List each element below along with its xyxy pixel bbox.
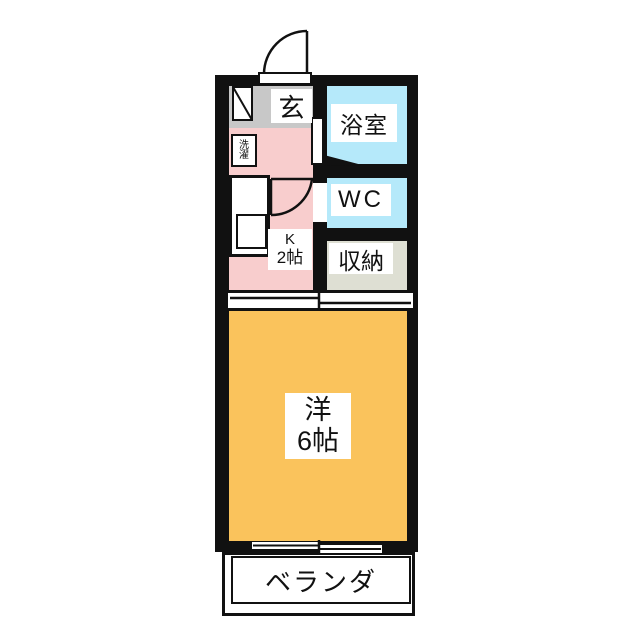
veranda: ベランダ	[231, 556, 411, 604]
kitchen-label-line1: K	[285, 231, 295, 248]
veranda-label: ベランダ	[265, 562, 377, 599]
bathroom-label: 浴室	[331, 104, 397, 142]
floor-plan: 洋 6帖 ベランダ 洗 濯	[0, 0, 640, 640]
room-western: 洋 6帖	[229, 311, 407, 541]
western-room-label-line1: 洋	[305, 395, 332, 426]
genkan-label: 玄	[271, 89, 312, 123]
western-room-label: 洋 6帖	[285, 393, 351, 459]
storage-label: 収納	[329, 243, 393, 274]
bathroom-door-icon	[311, 117, 324, 165]
kitchen-label: K 2帖	[268, 229, 312, 270]
sliding-door-track	[228, 293, 413, 308]
wc-label: WC	[331, 184, 391, 216]
kitchen-label-line2: 2帖	[277, 248, 303, 268]
western-room-label-line2: 6帖	[297, 426, 339, 457]
laundry-label-line1: 洗	[239, 141, 249, 151]
entrance-threshold	[258, 72, 312, 85]
washing-machine-icon: 洗 濯	[231, 134, 257, 167]
entrance-door-swing-icon	[264, 31, 307, 74]
shoe-cabinet-icon	[232, 86, 253, 121]
sink-icon	[236, 214, 267, 249]
laundry-label-line2: 濯	[239, 151, 249, 161]
